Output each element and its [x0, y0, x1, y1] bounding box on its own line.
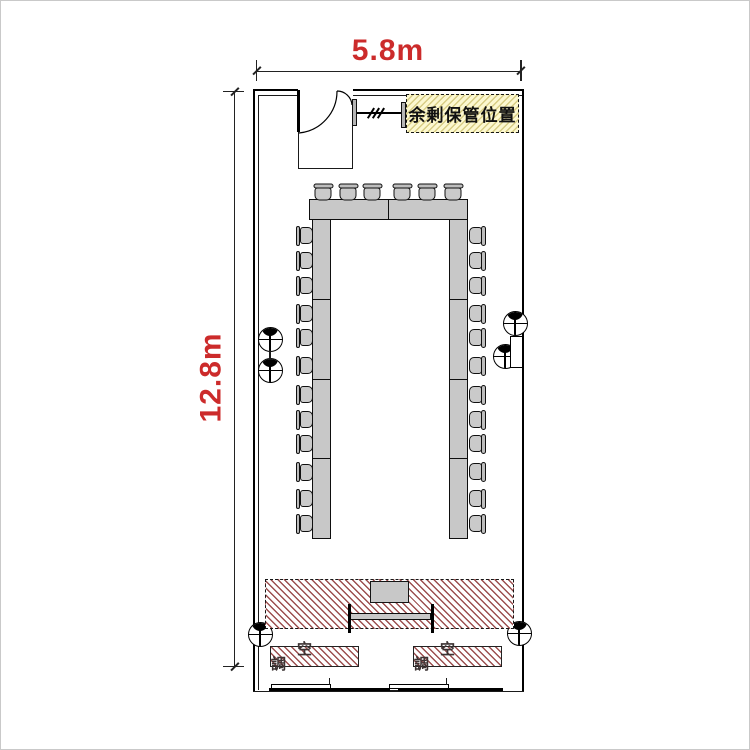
chair: [362, 184, 384, 201]
podium: [370, 581, 409, 603]
surplus-storage-zone: 余剰保管位置: [406, 94, 519, 133]
chair: [443, 184, 465, 201]
chair: [296, 488, 313, 510]
chair-seat: [469, 435, 482, 452]
length-dimension-label: 12.8m: [195, 338, 229, 423]
chair-seat: [419, 188, 436, 201]
chair-seat: [300, 490, 313, 507]
right-table-divider: [450, 379, 467, 380]
chair: [338, 184, 360, 201]
left-table-divider: [313, 458, 330, 459]
chair-seat: [469, 305, 482, 322]
wall-bottom-gap-step: [390, 690, 398, 691]
chair: [469, 225, 486, 247]
chair: [296, 355, 313, 377]
floor-plan: 5.8m 12.8m 余剰保管位置: [0, 0, 750, 750]
chair: [469, 355, 486, 377]
chair-seat: [469, 329, 482, 346]
chair-seat: [300, 515, 313, 532]
width-dimension-line: [256, 71, 521, 73]
chair: [469, 433, 486, 455]
window-tick: [329, 678, 330, 685]
chair: [296, 384, 313, 406]
chair: [469, 461, 486, 483]
chair: [469, 303, 486, 325]
chair-seat: [340, 188, 357, 201]
window-right: [389, 684, 449, 689]
wall-equipment-mark: [258, 327, 283, 352]
wall-left: [253, 89, 255, 692]
hvac-unit-right: 空調: [413, 646, 502, 667]
wall-right: [522, 89, 524, 692]
width-dimension-label: 5.8m: [328, 34, 448, 68]
chair: [469, 513, 486, 535]
chair: [417, 184, 439, 201]
chair: [469, 275, 486, 297]
chair: [392, 184, 414, 201]
wall-equipment-mark: [258, 358, 283, 383]
chair-seat: [469, 252, 482, 269]
chair: [296, 327, 313, 349]
screen-post: [431, 604, 434, 633]
chair-seat: [300, 305, 313, 322]
chair-seat: [300, 227, 313, 244]
chair-seat: [469, 227, 482, 244]
window-left: [271, 684, 331, 689]
chair: [296, 303, 313, 325]
right-table-divider: [450, 299, 467, 300]
mark-horizontal-line: [249, 634, 272, 636]
chair-seat: [469, 515, 482, 532]
alcove-bottom-line: [298, 168, 353, 169]
hvac-label-left: 空調: [271, 642, 358, 672]
left-table-divider: [313, 299, 330, 300]
chair-seat: [394, 188, 411, 201]
wall-mark-connector: [269, 351, 270, 360]
chair-seat: [300, 329, 313, 346]
length-dimension-line: [234, 91, 236, 666]
chair-seat: [300, 464, 313, 481]
left-table-divider: [313, 379, 330, 380]
window-tick: [446, 678, 447, 685]
chair: [469, 488, 486, 510]
chair: [296, 433, 313, 455]
chair-seat: [469, 411, 482, 428]
chair: [469, 384, 486, 406]
head-table-divider: [388, 200, 389, 219]
chair-seat: [300, 252, 313, 269]
surplus-storage-label: 余剰保管位置: [409, 101, 517, 126]
chair-seat: [469, 277, 482, 294]
door-swing-arc: [291, 85, 361, 141]
chair-seat: [315, 188, 332, 201]
chair-seat: [469, 464, 482, 481]
chair-seat: [300, 357, 313, 374]
chair: [469, 250, 486, 272]
chair-seat: [364, 188, 381, 201]
chair: [296, 225, 313, 247]
chair: [296, 461, 313, 483]
chair-seat: [300, 386, 313, 403]
chair: [296, 409, 313, 431]
chair-seat: [300, 411, 313, 428]
wall-notch: [510, 336, 523, 368]
mark-horizontal-line: [504, 323, 527, 325]
chair: [296, 513, 313, 535]
right-table-divider: [450, 458, 467, 459]
wall-top-right: [353, 89, 524, 91]
chair: [296, 275, 313, 297]
chair-seat: [469, 490, 482, 507]
hvac-label-right: 空調: [414, 642, 501, 672]
wall-left-inner: [258, 95, 259, 690]
chair: [469, 327, 486, 349]
chair-seat: [300, 435, 313, 452]
screen-post: [348, 604, 351, 633]
hvac-unit-left: 空調: [270, 646, 359, 667]
chair-seat: [469, 386, 482, 403]
mark-horizontal-line: [259, 370, 282, 372]
wall-equipment-mark: [503, 311, 528, 336]
screen-bar: [350, 613, 431, 620]
chair: [296, 250, 313, 272]
chair: [469, 409, 486, 431]
chair-seat: [445, 188, 462, 201]
mark-horizontal-line: [508, 633, 531, 635]
chair-seat: [469, 357, 482, 374]
mark-horizontal-line: [259, 339, 282, 341]
chair-seat: [300, 277, 313, 294]
chair: [313, 184, 335, 201]
